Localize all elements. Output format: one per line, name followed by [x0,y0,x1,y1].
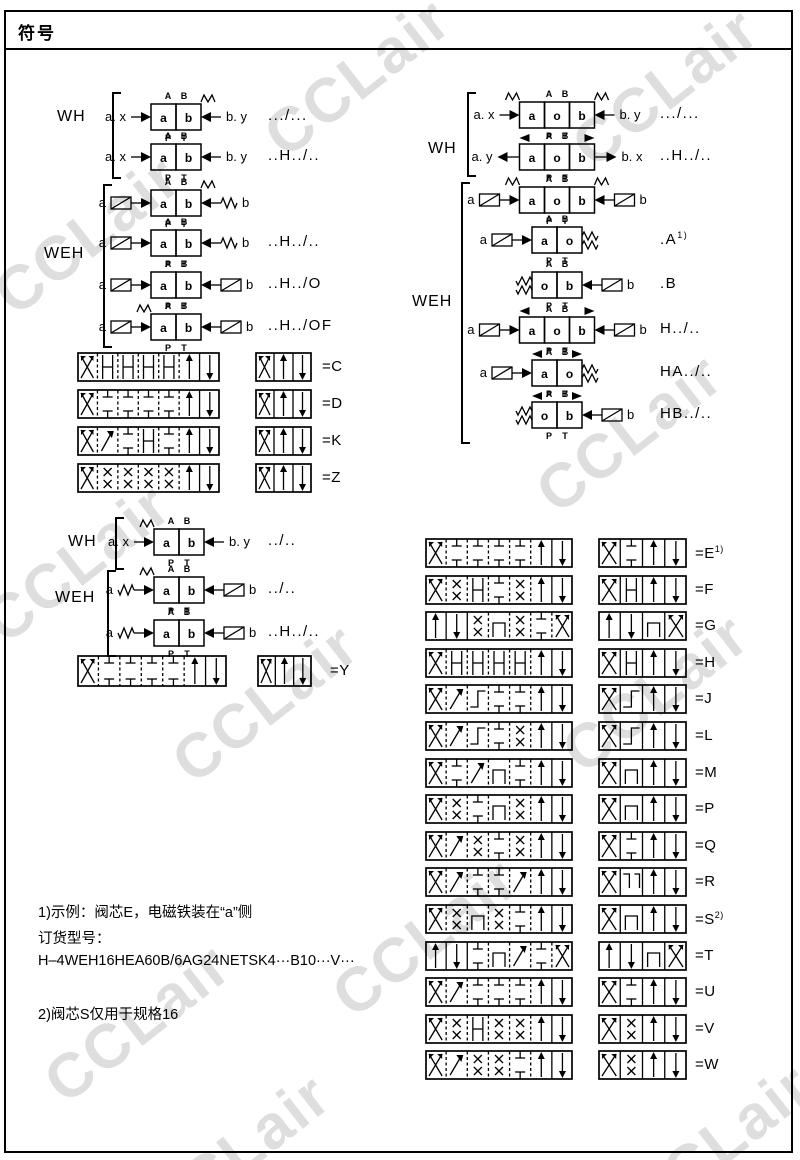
spool-row [425,941,573,971]
svg-text:a: a [529,151,536,165]
spool-row-narrow [598,941,687,971]
svg-text:B: B [181,131,188,141]
spool-symbol-narrow [255,463,312,493]
svg-text:A: A [546,347,553,357]
svg-text:A: A [165,91,172,101]
spool-code: ..H../.. [268,623,320,640]
svg-text:a: a [106,582,114,597]
spool-label: =L [695,727,713,744]
spool-row [425,611,573,641]
svg-text:A: A [546,131,553,141]
svg-text:o: o [566,234,573,248]
spool-symbol-wide [77,426,220,456]
spool-row-narrow [598,794,687,824]
svg-text:a: a [480,232,488,247]
svg-text:o: o [553,194,560,208]
spool-row [425,575,573,605]
spool-label: =P [695,800,715,817]
spool-row [425,721,573,751]
spool-row-narrow [598,684,687,714]
svg-text:b. x: b. x [622,149,643,164]
spool-label: =D [322,395,343,412]
svg-text:b: b [578,194,585,208]
svg-text:B: B [181,91,188,101]
svg-text:o: o [553,151,560,165]
svg-text:o: o [553,109,560,123]
footnote-1: 1)示例：阀芯E，电磁铁装在“a”侧 [38,901,252,922]
svg-text:a: a [99,195,107,210]
svg-text:b. y: b. y [226,149,247,164]
svg-text:a: a [163,627,170,641]
svg-text:a. x: a. x [105,149,126,164]
spool-symbol-wide [77,463,220,493]
spool-symbol-wide [425,611,573,641]
spool-symbol-wide [425,904,573,934]
spool-symbol-wide [425,1050,573,1080]
spool-symbol-narrow [255,352,312,382]
svg-text:b: b [242,235,249,250]
catalog-page: CCLairCCLairCCLairCCLairCCLairCCLairCCLa… [0,0,800,1160]
svg-text:b: b [578,324,585,338]
svg-text:B: B [562,214,569,224]
spool-symbol-narrow [598,831,687,861]
spool-code: ..H../.. [660,147,712,164]
svg-text:b: b [188,584,195,598]
svg-text:b: b [185,321,192,335]
spool-row-narrow [598,1014,687,1044]
spool-row [425,977,573,1007]
spool-code: .B [660,275,677,292]
svg-text:B: B [562,259,569,269]
svg-text:a: a [541,367,548,381]
spool-row-narrow [598,538,687,568]
spool-symbol-narrow [598,721,687,751]
spool-symbol-wide [77,655,227,687]
svg-text:a: a [160,111,167,125]
svg-text:a: a [529,194,536,208]
spool-row [77,655,227,687]
svg-text:a: a [467,192,475,207]
spool-label: =W [695,1056,719,1073]
spool-row-narrow [255,426,312,456]
svg-text:a: a [99,319,107,334]
svg-text:o: o [553,324,560,338]
svg-text:b: b [566,279,573,293]
svg-text:a: a [529,324,536,338]
spool-row [77,463,220,493]
spool-label: =Q [695,837,716,854]
svg-text:b: b [578,109,585,123]
svg-text:b. y: b. y [620,107,641,122]
svg-text:a: a [160,237,167,251]
svg-text:B: B [184,516,191,526]
svg-text:a: a [160,321,167,335]
spool-code: HA../.. [660,363,712,380]
spool-row [425,904,573,934]
spool-symbol-narrow [598,758,687,788]
svg-text:b: b [627,407,634,422]
spool-label: =Z [322,469,341,486]
spool-row-narrow [598,1050,687,1080]
svg-text:B: B [562,304,569,314]
spool-label: =S2) [695,910,724,928]
svg-text:o: o [566,367,573,381]
svg-text:B: B [181,301,188,311]
spool-symbol-wide [425,758,573,788]
svg-text:b: b [185,111,192,125]
spool-row-narrow [598,831,687,861]
spool-symbol-wide [425,538,573,568]
svg-text:a: a [160,279,167,293]
svg-text:A: A [546,389,553,399]
spool-row-narrow [255,389,312,419]
spool-symbol-narrow [598,611,687,641]
spool-symbol-wide [425,977,573,1007]
svg-text:P: P [546,431,552,441]
svg-text:B: B [562,174,569,184]
svg-text:a: a [541,234,548,248]
svg-text:b: b [242,195,249,210]
spool-row [425,538,573,568]
spool-code: ..H../O [268,275,322,292]
svg-text:A: A [165,259,172,269]
spool-label: =U [695,983,716,1000]
svg-text:B: B [562,89,569,99]
spool-row-narrow [598,758,687,788]
spool-code: ..H../.. [268,147,320,164]
spool-row-narrow [598,977,687,1007]
spool-symbol-narrow [255,426,312,456]
svg-text:a: a [99,277,107,292]
spool-label: =K [322,432,342,449]
spool-label: =Y [330,662,350,679]
spool-row [425,867,573,897]
spool-symbol-narrow [598,941,687,971]
spool-label: =M [695,764,717,781]
spool-symbol-wide [425,867,573,897]
svg-text:B: B [562,389,569,399]
svg-text:b: b [188,627,195,641]
spool-row [425,831,573,861]
svg-text:b: b [249,625,256,640]
svg-text:b: b [640,322,647,337]
spool-symbol-wide [77,352,220,382]
spool-symbol-narrow [257,655,312,687]
spool-label: =G [695,617,716,634]
spool-label: =C [322,358,343,375]
svg-text:b: b [185,279,192,293]
spool-row-narrow [257,655,312,687]
svg-text:a. x: a. x [105,109,126,124]
spool-symbol-narrow [598,867,687,897]
spool-label: =R [695,873,716,890]
spool-row-narrow [598,867,687,897]
spool-code: ../.. [268,580,296,597]
spool-symbol-wide [77,389,220,419]
svg-text:A: A [168,607,175,617]
svg-text:a: a [480,365,488,380]
spool-symbol-wide [425,941,573,971]
svg-text:B: B [181,177,188,187]
spool-symbol-narrow [598,648,687,678]
spool-row-narrow [598,721,687,751]
spool-row-narrow [255,352,312,382]
svg-text:o: o [541,409,548,423]
svg-text:a. x: a. x [474,107,495,122]
spool-code: HB../.. [660,405,712,422]
svg-text:B: B [181,259,188,269]
spool-label: =T [695,947,714,964]
spool-symbol-wide [425,684,573,714]
svg-text:b: b [185,151,192,165]
spool-symbol-narrow [598,904,687,934]
spool-symbol-narrow [598,538,687,568]
svg-text:T: T [562,431,568,441]
spool-row-narrow [598,611,687,641]
svg-text:B: B [184,607,191,617]
spool-symbol-wide [425,575,573,605]
svg-text:a: a [529,109,536,123]
spool-row-narrow [598,648,687,678]
svg-text:a. y: a. y [472,149,493,164]
spool-row-narrow [598,904,687,934]
svg-text:b: b [249,582,256,597]
svg-text:b: b [188,536,195,550]
svg-text:b: b [640,192,647,207]
svg-text:A: A [165,131,172,141]
spool-code: ..H../OF [268,317,333,334]
svg-text:A: A [165,301,172,311]
svg-text:A: A [165,177,172,187]
svg-text:A: A [546,89,553,99]
svg-text:B: B [184,564,191,574]
spool-code: ..H../.. [268,233,320,250]
spool-label: =F [695,581,714,598]
spool-row [425,648,573,678]
spool-label: =H [695,654,716,671]
spool-label: =V [695,1020,715,1037]
spool-symbol-narrow [598,977,687,1007]
svg-text:a: a [99,235,107,250]
svg-text:b: b [627,277,634,292]
spool-row [77,389,220,419]
svg-text:b: b [185,237,192,251]
svg-text:b: b [246,277,253,292]
svg-text:A: A [546,304,553,314]
spool-symbol-narrow [255,389,312,419]
footnote-3: 2)阀芯S仅用于规格16 [38,1003,178,1024]
spool-row [425,684,573,714]
spool-row [77,352,220,382]
spool-row-narrow [255,463,312,493]
svg-text:a: a [160,151,167,165]
spool-row [425,758,573,788]
svg-text:b: b [185,197,192,211]
svg-text:a: a [163,584,170,598]
spool-row [425,1014,573,1044]
svg-text:o: o [541,279,548,293]
footnote-2: 订货型号： [38,927,111,948]
header-divider [4,48,793,50]
svg-text:B: B [181,217,188,227]
spool-label: =E1) [695,544,724,562]
svg-text:A: A [546,214,553,224]
svg-text:a: a [160,197,167,211]
svg-text:b: b [566,409,573,423]
svg-text:A: A [165,217,172,227]
svg-text:A: A [546,259,553,269]
svg-text:a: a [106,625,114,640]
spool-symbol-wide [425,648,573,678]
spool-symbol-narrow [598,1014,687,1044]
spool-symbol-wide [425,1014,573,1044]
spool-row [425,1050,573,1080]
spool-symbol-narrow [598,684,687,714]
spool-symbol-narrow [598,794,687,824]
spool-symbol-wide [425,794,573,824]
svg-text:b: b [246,319,253,334]
spool-symbol-wide [425,721,573,751]
svg-text:B: B [562,131,569,141]
svg-text:a. x: a. x [108,534,129,549]
spool-row [425,794,573,824]
spool-code: H../.. [660,320,701,337]
spool-code: .A1) [660,230,688,248]
spool-code: ../.. [268,532,296,549]
spool-row-narrow [598,575,687,605]
svg-text:A: A [168,516,175,526]
spool-symbol-narrow [598,575,687,605]
page-title: 符号 [18,19,56,44]
spool-symbol-wide [425,831,573,861]
svg-text:A: A [546,174,553,184]
svg-text:b. y: b. y [226,109,247,124]
spool-label: =J [695,690,712,707]
spool-symbol-narrow [598,1050,687,1080]
svg-text:B: B [562,347,569,357]
svg-text:a: a [467,322,475,337]
spool-code: .../... [660,105,700,122]
footnote-order-code: H–4WEH16HEA60B/6AG24NETSK4···B10···V··· [38,953,355,969]
svg-text:b. y: b. y [229,534,250,549]
spool-code: .../... [268,107,308,124]
spool-row [77,426,220,456]
svg-text:a: a [163,536,170,550]
svg-text:b: b [578,151,585,165]
svg-text:A: A [168,564,175,574]
